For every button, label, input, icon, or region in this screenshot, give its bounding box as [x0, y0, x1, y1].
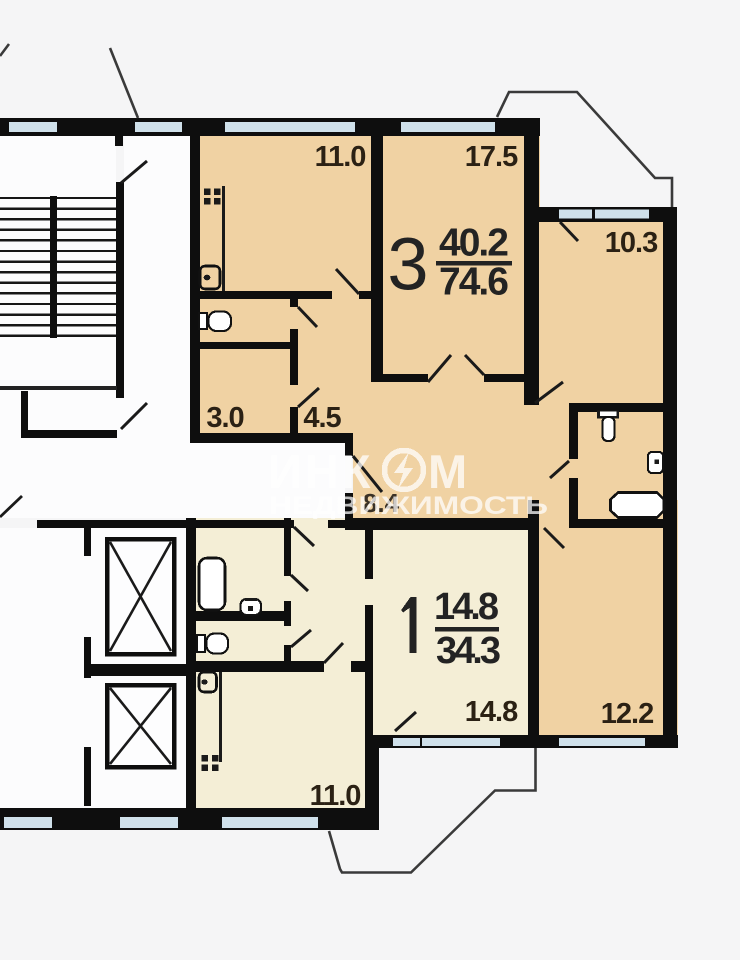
svg-text:74.6: 74.6	[439, 261, 508, 304]
svg-text:3.0: 3.0	[206, 402, 243, 434]
svg-text:11.0: 11.0	[310, 780, 361, 812]
svg-text:ИНК: ИНК	[268, 445, 373, 498]
svg-text:3: 3	[387, 223, 428, 306]
svg-text:4.5: 4.5	[303, 402, 341, 434]
svg-text:14.8: 14.8	[465, 696, 518, 728]
svg-text:34.3: 34.3	[436, 630, 500, 672]
svg-text:14.8: 14.8	[434, 586, 498, 628]
svg-text:11.0: 11.0	[315, 141, 366, 173]
svg-text:10.3: 10.3	[605, 227, 658, 259]
svg-text:17.5: 17.5	[465, 141, 518, 173]
svg-text:М: М	[428, 445, 467, 498]
svg-text:40.2: 40.2	[439, 222, 508, 265]
svg-text:12.2: 12.2	[601, 698, 653, 730]
svg-text:НЕДВИЖИМОСТЬ: НЕДВИЖИМОСТЬ	[269, 492, 548, 520]
